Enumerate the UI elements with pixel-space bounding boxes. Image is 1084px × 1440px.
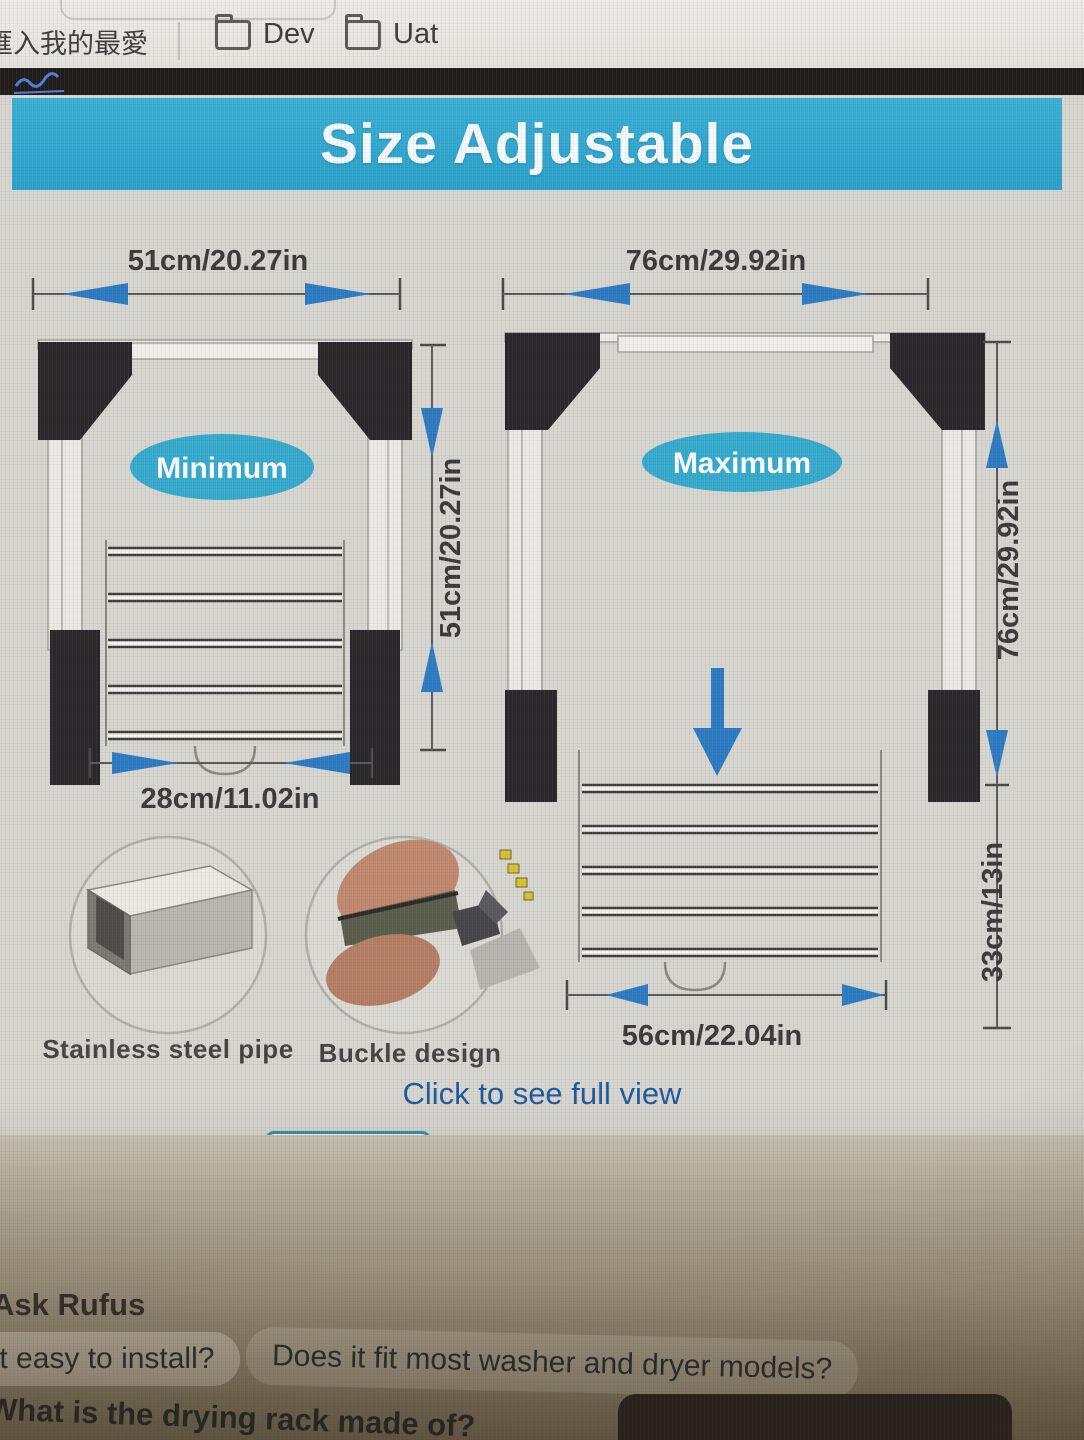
- rack-bars: [108, 548, 342, 739]
- dim-label-max-height: 76cm/29.92in: [993, 480, 1025, 661]
- bookmarks-divider: [178, 22, 180, 60]
- rack-bars: [582, 785, 878, 956]
- bookmark-folder-label: Uat: [393, 18, 438, 51]
- corner-pad: [38, 342, 132, 440]
- bookmark-folder-uat[interactable]: Uat: [345, 18, 438, 51]
- page-top-dark-band: [0, 68, 1084, 98]
- foot-pad: [928, 690, 980, 802]
- screen-photo: 匯入我的最愛 Dev Uat Size Adjustable 51cm/20.2…: [0, 0, 1084, 1440]
- folder-icon: [215, 20, 251, 50]
- tape-measure-marks: [500, 850, 533, 900]
- size-diagram-graphic: 51cm/20.27in 76cm/29.92in: [0, 190, 1084, 1135]
- bookmark-folder-dev[interactable]: Dev: [215, 18, 315, 51]
- dim-label-max-top: 76cm/29.92in: [626, 245, 807, 277]
- folder-icon: [345, 20, 381, 50]
- feature-pipe: Stainless steel pipe: [42, 837, 293, 1064]
- bookmark-folder-label: Dev: [263, 18, 315, 51]
- corner-pad: [890, 333, 985, 430]
- dim-max-bottom-width: 56cm/22.04in: [567, 980, 886, 1052]
- dim-min-bottom-width: 28cm/11.02in: [90, 748, 372, 815]
- full-view-link[interactable]: Click to see full view: [302, 1076, 782, 1116]
- dim-min-top-width: 51cm/20.27in: [33, 245, 400, 310]
- partial-link-text: [12, 70, 82, 96]
- dim-label-max-bottom: 56cm/22.04in: [622, 1020, 803, 1052]
- size-adjustable-banner: Size Adjustable: [12, 98, 1062, 190]
- dim-max-height: 76cm/29.92in 33cm/13in: [977, 342, 1025, 1028]
- slide-down-arrow: [693, 668, 742, 776]
- dim-min-height: 51cm/20.27in: [420, 345, 467, 750]
- foot-pad: [350, 630, 400, 785]
- dim-label-min-top: 51cm/20.27in: [128, 245, 309, 277]
- rufus-question-install[interactable]: Is it easy to install?: [0, 1332, 240, 1386]
- ask-rufus-heading: Ask Rufus: [0, 1287, 145, 1323]
- rack-handle: [665, 962, 725, 990]
- rufus-question-label: Is it easy to install?: [0, 1342, 214, 1376]
- feature-buckle: Buckle design: [306, 822, 540, 1068]
- bookmark-import-favorites[interactable]: 匯入我的最愛: [0, 22, 148, 61]
- rufus-question-label: Does it fit most washer and dryer models…: [272, 1339, 833, 1387]
- feature-pipe-caption: Stainless steel pipe: [42, 1034, 293, 1064]
- corner-pad: [318, 342, 412, 440]
- corner-pad: [505, 333, 600, 430]
- foot-pad: [50, 630, 100, 785]
- minimum-label: Minimum: [156, 452, 288, 485]
- dim-label-min-bottom: 28cm/11.02in: [141, 783, 320, 815]
- dim-label-rack-drop: 33cm/13in: [977, 842, 1009, 982]
- maximum-label: Maximum: [673, 447, 811, 480]
- maximum-stand-diagram: Maximum: [505, 333, 985, 990]
- dim-label-min-height: 51cm/20.27in: [435, 458, 467, 639]
- bookmarks-bar: 匯入我的最愛 Dev Uat: [0, 0, 1084, 68]
- dim-max-top-width: 76cm/29.92in: [503, 245, 928, 310]
- rack-handle: [195, 746, 255, 774]
- dark-tooltip-button[interactable]: [618, 1394, 1012, 1440]
- feature-buckle-caption: Buckle design: [319, 1038, 502, 1068]
- url-box-bottom-edge: [60, 0, 336, 20]
- minimum-stand-diagram: Minimum: [38, 340, 412, 785]
- foot-pad: [505, 690, 557, 802]
- banner-title: Size Adjustable: [320, 111, 754, 177]
